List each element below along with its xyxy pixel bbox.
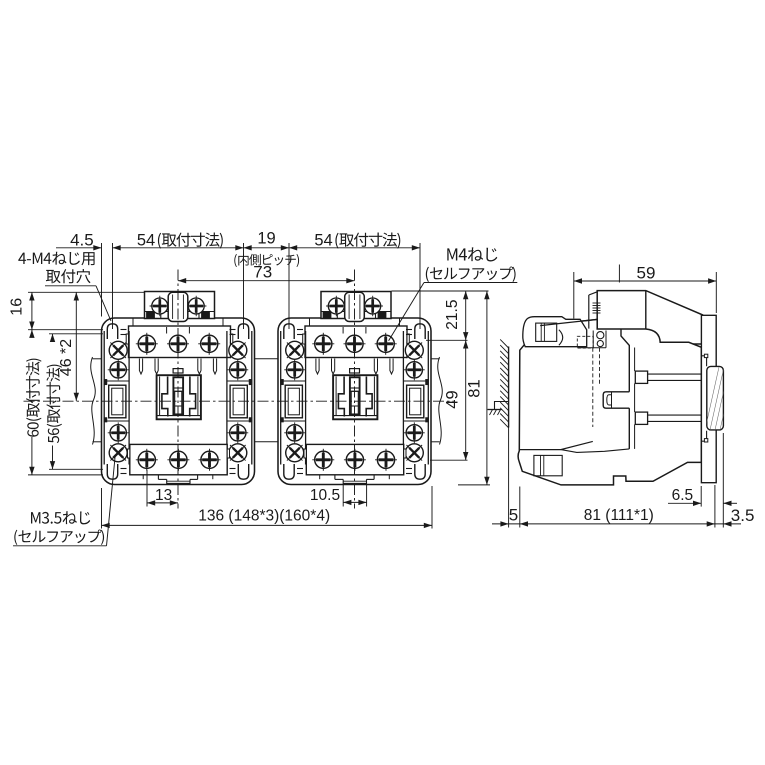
svg-text:81: 81 <box>466 379 484 397</box>
svg-text:54: 54 <box>314 232 332 250</box>
svg-text:10.5: 10.5 <box>310 487 340 504</box>
svg-text:81 (111*1): 81 (111*1) <box>584 507 654 524</box>
svg-text:13: 13 <box>155 487 172 504</box>
svg-text:49: 49 <box>443 390 461 408</box>
svg-text:136 (148*3)(160*4): 136 (148*3)(160*4) <box>198 508 330 525</box>
svg-text:21.5: 21.5 <box>444 300 461 330</box>
svg-text:54: 54 <box>137 232 155 250</box>
svg-text:73: 73 <box>253 263 272 282</box>
svg-text:4.5: 4.5 <box>70 231 94 250</box>
svg-text:46 *2: 46 *2 <box>58 339 75 376</box>
svg-text:59: 59 <box>637 264 656 283</box>
svg-text:19: 19 <box>257 230 275 248</box>
svg-text:3.5: 3.5 <box>731 506 755 525</box>
svg-text:5: 5 <box>509 506 518 525</box>
svg-text:6.5: 6.5 <box>672 487 694 504</box>
svg-text:16: 16 <box>9 298 26 316</box>
